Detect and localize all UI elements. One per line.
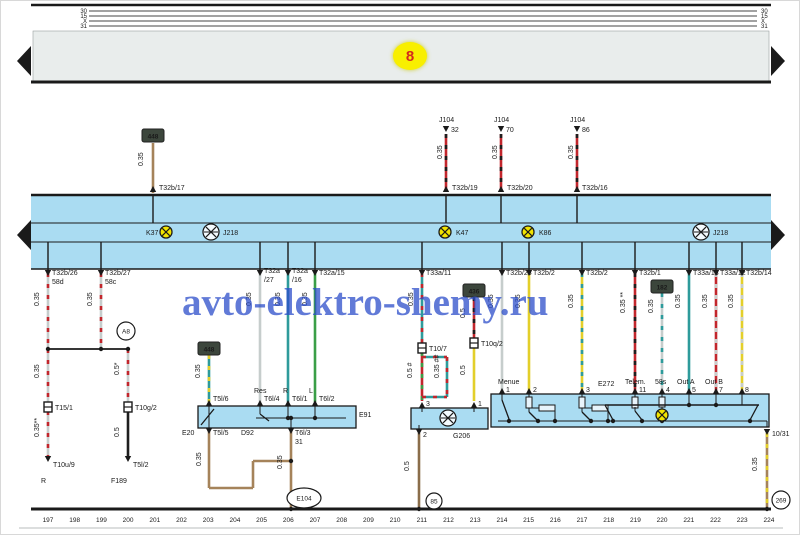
j104-label: J104 (439, 117, 454, 124)
pin-arrow (526, 388, 532, 394)
58c-label: 58c (105, 279, 117, 286)
t5l-2-label: T5l/2 (133, 462, 149, 469)
0-35-label: 0.35 (34, 364, 41, 378)
pin-arrow (499, 388, 505, 394)
wiring-diagram-page: 448448436182A8E104852693015X313015X31J10… (0, 0, 800, 535)
f189-label: F189 (111, 478, 127, 485)
pin-arrow (498, 126, 504, 132)
t32b-1-label: T32b/1 (639, 270, 661, 277)
220-label: 220 (657, 517, 668, 524)
r-label: R (283, 388, 288, 395)
0-5-label: 0.5* (114, 362, 121, 375)
198-label: 198 (69, 517, 80, 524)
212-label: 212 (443, 517, 454, 524)
t5l-5-label: T5l/5 (213, 430, 229, 437)
202-label: 202 (176, 517, 187, 524)
resistor (539, 405, 555, 411)
204-label: 204 (229, 517, 240, 524)
0-35-label: 0.35 (34, 292, 41, 306)
t6l-4-label: T6l/4 (264, 396, 280, 403)
a8-label: A8 (122, 328, 130, 335)
0-5-label: 0.5 (114, 427, 121, 437)
t10g-2-label: T10g/2 (135, 405, 157, 412)
junction-dot (536, 419, 540, 423)
215-label: 215 (523, 517, 534, 524)
pin-arrow (764, 429, 770, 435)
resistor (579, 397, 585, 408)
214-label: 214 (496, 517, 507, 524)
junction-dot (553, 419, 557, 423)
menue-label: Menue (498, 379, 520, 386)
t32b-28-label: T32b/28 (506, 270, 532, 277)
t32b-2-label: T32b/2 (533, 270, 555, 277)
85-label: 85 (430, 498, 438, 505)
t10u-9-label: T10u/9 (53, 462, 75, 469)
t32a-label: T32a (292, 268, 308, 275)
0-35-label: 0.35 ## (434, 355, 441, 378)
j218-label: J218 (713, 230, 728, 237)
0-5-label: 0.5 # (407, 362, 414, 378)
207-label: 207 (310, 517, 321, 524)
t32b-19-label: T32b/19 (452, 185, 478, 192)
junction-dot (714, 403, 718, 407)
0-35-label: 0.35 (87, 292, 94, 306)
junction-dot (687, 403, 691, 407)
r-label: R (41, 478, 46, 485)
resistor (632, 397, 638, 408)
t32b-2-label: T32b/2 (586, 270, 608, 277)
pin-arrow (579, 270, 585, 276)
pin-arrow (443, 186, 449, 192)
t32b-20-label: T32b/20 (507, 185, 533, 192)
band-arrow-left (17, 46, 31, 76)
211-label: 211 (417, 517, 428, 524)
219-label: 219 (630, 517, 641, 524)
205-label: 205 (256, 517, 267, 524)
10-31-label: 10/31 (772, 431, 790, 438)
27-label: /27 (264, 277, 274, 284)
16-label: /16 (292, 277, 302, 284)
216-label: 216 (550, 517, 561, 524)
pin-arrow (579, 388, 585, 394)
217-label: 217 (577, 517, 588, 524)
269-label: 269 (776, 497, 787, 504)
5-label: 5 (692, 387, 696, 394)
e272-label: E272 (598, 381, 614, 388)
l-label: L (309, 388, 313, 395)
31-label: 31 (295, 439, 303, 446)
pin-arrow (499, 270, 505, 276)
pin-arrow (659, 388, 665, 394)
pin-arrow (257, 270, 263, 276)
wiring-diagram: 448448436182A8E104852693015X313015X31J10… (1, 1, 800, 535)
11-label: 11 (639, 387, 646, 394)
pin-arrow (288, 428, 294, 434)
pin-arrow (206, 428, 212, 434)
0-35-label: 0.35 (488, 294, 495, 308)
200-label: 200 (123, 517, 134, 524)
junction-dot (289, 416, 293, 420)
203-label: 203 (203, 517, 214, 524)
182-label: 182 (657, 285, 668, 292)
t6l-3-label: T6l/3 (295, 430, 311, 437)
pin-arrow (416, 429, 422, 435)
t32b-16-label: T32b/16 (582, 185, 608, 192)
0-35-label: 0.35 (275, 292, 282, 306)
70-label: 70 (506, 127, 514, 134)
0-5-label: 0.5 (460, 365, 467, 375)
junction-dot (289, 459, 293, 463)
0-35-label: 0.35 (408, 292, 415, 306)
k86-label: K86 (539, 230, 552, 237)
k37-label: K37 (146, 230, 159, 237)
k47-label: K47 (456, 230, 469, 237)
j218-label: J218 (223, 230, 238, 237)
2-label: 2 (423, 432, 427, 439)
7-label: 7 (719, 387, 723, 394)
page-number-badge: 8 (393, 42, 427, 70)
junction-dot (606, 419, 610, 423)
t6l-1-label: T6l/1 (292, 396, 308, 403)
pin-arrow (686, 270, 692, 276)
3-label: 3 (426, 401, 430, 408)
0-5-label: 0.5 (460, 308, 467, 318)
0-35-label: 0.35 (568, 145, 575, 159)
junction-dot (748, 419, 752, 423)
0-35-label: 0.35 ** (620, 292, 627, 313)
t33a-11-label: T33a/11 (426, 270, 451, 277)
t32b-27-label: T32b/27 (105, 270, 131, 277)
201-label: 201 (149, 517, 160, 524)
component-e272-box (491, 394, 769, 427)
199-label: 199 (96, 517, 107, 524)
e20-label: E20 (182, 430, 195, 437)
pin-arrow (312, 400, 318, 406)
e91-label: E91 (359, 412, 372, 419)
t15-1-label: T15/1 (55, 405, 73, 412)
bus-arrow-right (771, 220, 785, 250)
197-label: 197 (43, 517, 54, 524)
31-label: 31 (80, 24, 87, 30)
e104-label: E104 (296, 495, 312, 502)
0-35-label: 0.35** (34, 418, 41, 437)
0-35-label: 0.35 (246, 292, 253, 306)
pin-arrow (312, 270, 318, 276)
223-label: 223 (737, 517, 748, 524)
pin-arrow (45, 270, 51, 276)
pin-arrow (285, 400, 291, 406)
pin-arrow (257, 400, 263, 406)
t10-7-label: T10/7 (429, 346, 447, 353)
0-35-label: 0.35 (437, 145, 444, 159)
0-35-label: 0.35 (568, 294, 575, 308)
resistor (526, 397, 532, 408)
pin-arrow (45, 456, 51, 462)
0-35-label: 0.35 (675, 294, 682, 308)
58d-label: 58d (52, 279, 64, 286)
4-label: 4 (666, 387, 670, 394)
2-label: 2 (533, 387, 537, 394)
t10q-2-label: T10q/2 (481, 341, 503, 348)
t33a-12-label: T33a/12 (720, 270, 746, 277)
0-35-label: 0.35 (728, 294, 735, 308)
8-label: 8 (745, 387, 749, 394)
32-label: 32 (451, 127, 459, 134)
pin-arrow (150, 186, 156, 192)
448-label: 448 (204, 347, 215, 354)
component-e91-box (198, 406, 356, 428)
0-35-label: 0.35 (138, 152, 145, 166)
1-label: 1 (506, 387, 510, 394)
pin-arrow (574, 126, 580, 132)
pin-arrow (443, 126, 449, 132)
224-label: 224 (763, 517, 774, 524)
junction-dot (46, 347, 50, 351)
3-label: 3 (586, 387, 590, 394)
436-label: 436 (469, 289, 480, 296)
pin-arrow (498, 186, 504, 192)
pin-arrow (285, 270, 291, 276)
206-label: 206 (283, 517, 294, 524)
208-label: 208 (336, 517, 347, 524)
58s-label: 58s (655, 379, 667, 386)
0-5-label: 0.5 (404, 461, 411, 471)
209-label: 209 (363, 517, 374, 524)
210-label: 210 (390, 517, 401, 524)
junction-dot (289, 507, 293, 511)
t6l-2-label: T6l/2 (319, 396, 335, 403)
out-a-label: Out A (677, 379, 695, 386)
86-label: 86 (582, 127, 590, 134)
pin-arrow (471, 402, 477, 408)
t32a-label: T32a (264, 268, 280, 275)
pin-arrow (206, 400, 212, 406)
0-35-label: 0.35 (492, 145, 499, 159)
junction-dot (99, 347, 103, 351)
band-arrow-right (771, 46, 785, 76)
junction-dot (640, 419, 644, 423)
448-label: 448 (148, 134, 159, 141)
pin-arrow (98, 270, 104, 276)
junction-dot (765, 507, 769, 511)
g206-label: G206 (453, 433, 470, 440)
1-label: 1 (478, 401, 482, 408)
junction-dot (313, 416, 317, 420)
junction-dot (507, 419, 511, 423)
0-35-label: 0.35 (195, 364, 202, 378)
pin-arrow (419, 402, 425, 408)
junction-dot (126, 347, 130, 351)
pin-arrow (125, 456, 131, 462)
t5l-6-label: T5l/6 (213, 396, 229, 403)
t32b-17-label: T32b/17 (159, 185, 185, 192)
junction-dot (417, 507, 421, 511)
t32b-26-label: T32b/26 (52, 270, 78, 277)
pin-arrow (632, 270, 638, 276)
bus-arrow-left (17, 220, 31, 250)
out-b-label: Out B (705, 379, 723, 386)
0-35-label: 0.35 (515, 294, 522, 308)
t32a-15-label: T32a/15 (319, 270, 345, 277)
t32b-14-label: T32b/14 (746, 270, 772, 277)
j104-label: J104 (570, 117, 585, 124)
0-35-label: 0.35 (702, 294, 709, 308)
222-label: 222 (710, 517, 721, 524)
bus-band (31, 195, 771, 269)
0-35-label: 0.35 (277, 455, 284, 469)
j104-label: J104 (494, 117, 509, 124)
junction-dot (589, 419, 593, 423)
junction-dot (611, 419, 615, 423)
218-label: 218 (603, 517, 614, 524)
t33a-13-label: T33a/13 (693, 270, 719, 277)
31-label: 31 (761, 24, 768, 30)
0-35-label: 0.35 (648, 299, 655, 313)
221-label: 221 (683, 517, 694, 524)
0-35-label: 0.35 (196, 452, 203, 466)
213-label: 213 (470, 517, 481, 524)
telem-label: Telem. (625, 379, 646, 386)
pin-arrow (419, 270, 425, 276)
pin-arrow (632, 388, 638, 394)
pin-arrow (574, 186, 580, 192)
0-35-label: 0.35 (302, 292, 309, 306)
d92-label: D92 (241, 430, 254, 437)
0-35-label: 0.35 (752, 457, 759, 471)
res-label: Res (254, 388, 267, 395)
